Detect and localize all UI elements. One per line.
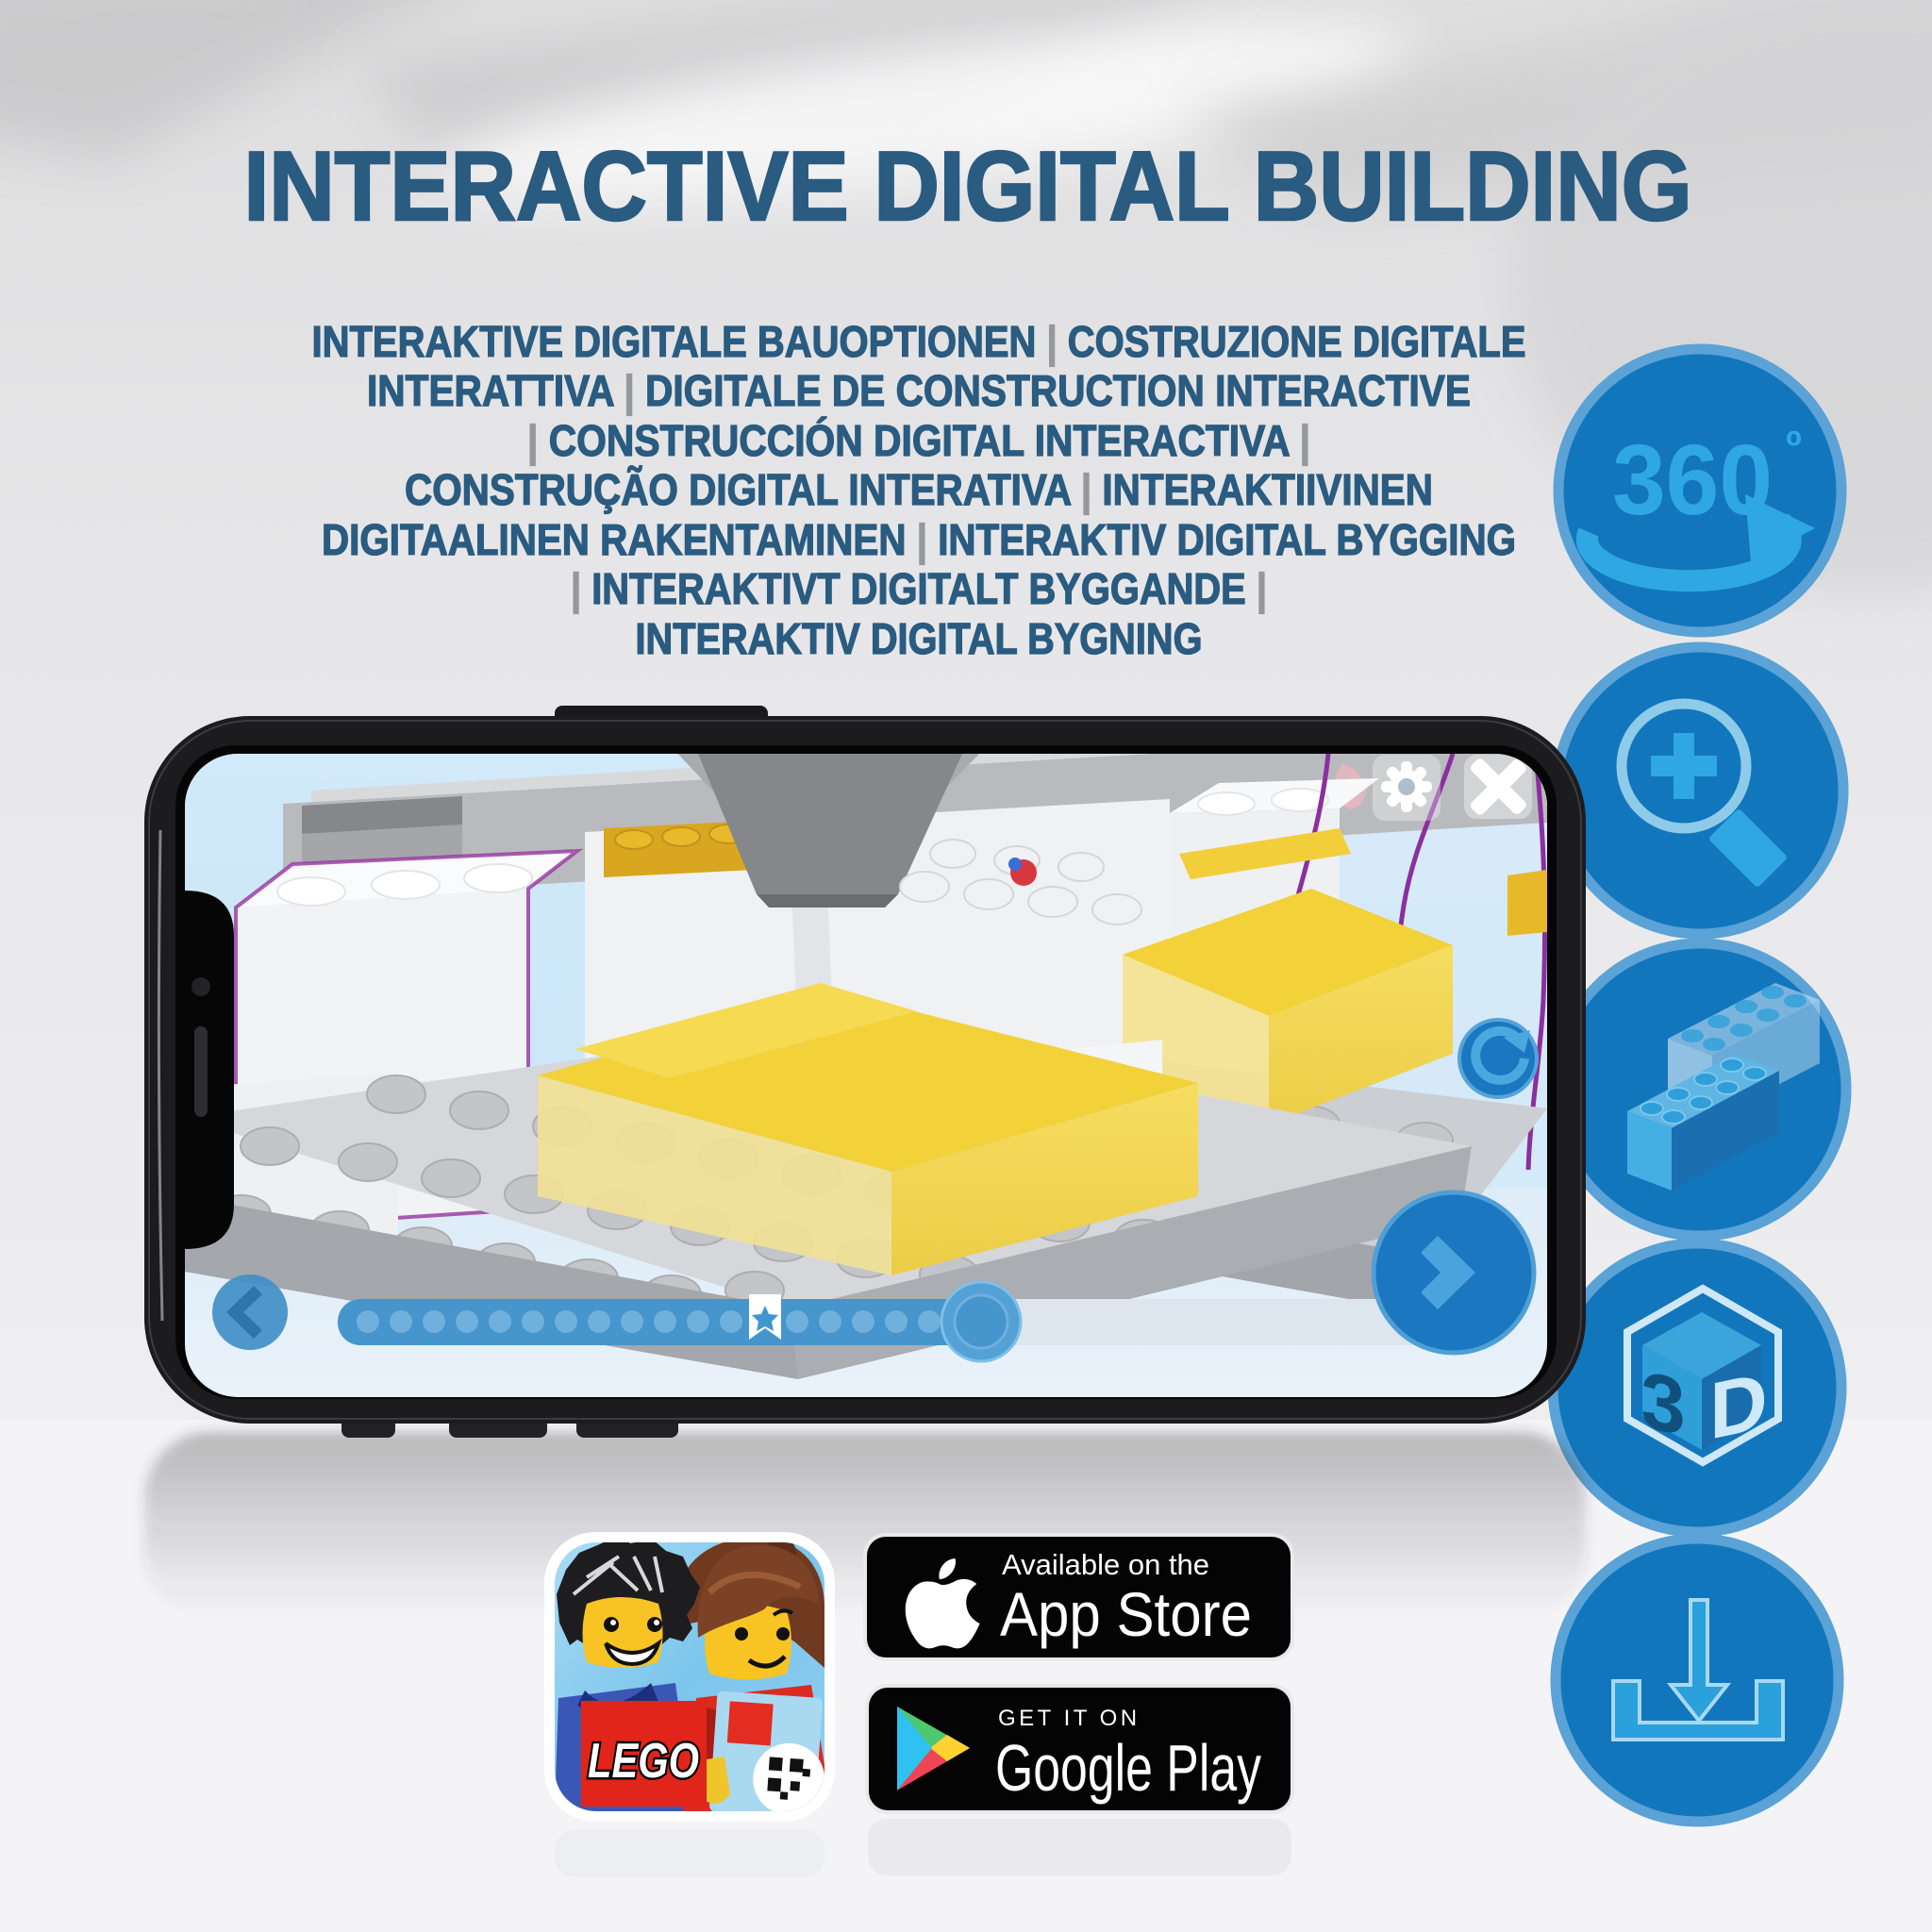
svg-text:INTERACTIVE DIGITAL BUILDING: INTERACTIVE DIGITAL BUILDING	[244, 132, 1692, 241]
svg-text:DIGITAALINEN RAKENTAMINEN | IN: DIGITAALINEN RAKENTAMINEN | INTERAKTIV D…	[322, 515, 1516, 564]
svg-text:INTERAKTIV DIGITAL BYGNING: INTERAKTIV DIGITAL BYGNING	[636, 614, 1203, 663]
svg-text:CONSTRUÇÃO DIGITAL INTERATIVA: CONSTRUÇÃO DIGITAL INTERATIVA | INTERAKT…	[405, 465, 1433, 514]
svg-text:INTERAKTIVE DIGITALE BAUOPTION: INTERAKTIVE DIGITALE BAUOPTIONEN | COSTR…	[312, 317, 1526, 366]
svg-text:INTERATTIVA | DIGITALE DE CONS: INTERATTIVA | DIGITALE DE CONSTRUCTION I…	[367, 366, 1471, 415]
svg-text:Google Play: Google Play	[995, 1731, 1261, 1805]
svg-text:D: D	[1709, 1356, 1767, 1457]
svg-text:Available on the: Available on the	[1002, 1548, 1209, 1581]
svg-text:GET IT ON: GET IT ON	[998, 1706, 1141, 1731]
svg-text:App Store: App Store	[1000, 1579, 1252, 1649]
svg-text:| CONSTRUCCIÓN DIGITAL INTERAC: | CONSTRUCCIÓN DIGITAL INTERACTIVA |	[527, 416, 1310, 465]
svg-text:3: 3	[1641, 1355, 1685, 1454]
svg-text:LEGO: LEGO	[588, 1734, 699, 1789]
svg-text:| INTERAKTIVT DIGITALT BYGGAND: | INTERAKTIVT DIGITALT BYGGANDE |	[571, 564, 1267, 613]
svg-text:º: º	[1786, 422, 1802, 471]
